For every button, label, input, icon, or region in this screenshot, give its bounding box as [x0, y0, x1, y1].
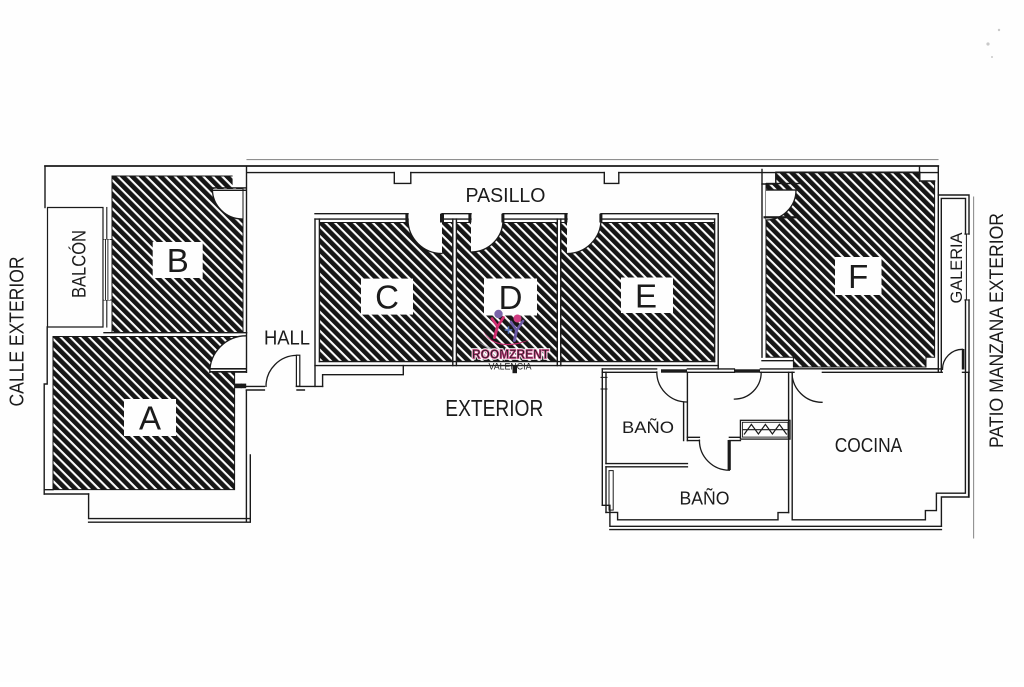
- svg-text:PATIO MANZANA EXTERIOR: PATIO MANZANA EXTERIOR: [987, 213, 1008, 448]
- svg-text:A: A: [139, 400, 161, 437]
- svg-text:BAÑO: BAÑO: [680, 488, 730, 509]
- svg-text:CALLE EXTERIOR: CALLE EXTERIOR: [7, 257, 29, 407]
- svg-text:D: D: [499, 279, 523, 316]
- svg-text:VALENCIA: VALENCIA: [489, 362, 532, 372]
- svg-text:HALL: HALL: [264, 328, 310, 350]
- svg-text:EXTERIOR: EXTERIOR: [445, 395, 543, 421]
- svg-text:BALCÓN: BALCÓN: [69, 230, 91, 298]
- svg-text:C: C: [375, 279, 399, 316]
- svg-text:BAÑO: BAÑO: [622, 417, 674, 437]
- svg-text:F: F: [848, 258, 868, 295]
- svg-text:GALERIA: GALERIA: [947, 232, 966, 304]
- svg-text:B: B: [167, 242, 189, 279]
- svg-text:PASILLO: PASILLO: [466, 185, 546, 207]
- svg-text:E: E: [635, 277, 657, 314]
- svg-text:COCINA: COCINA: [835, 435, 903, 457]
- svg-text:ROOMZRENT: ROOMZRENT: [472, 347, 549, 362]
